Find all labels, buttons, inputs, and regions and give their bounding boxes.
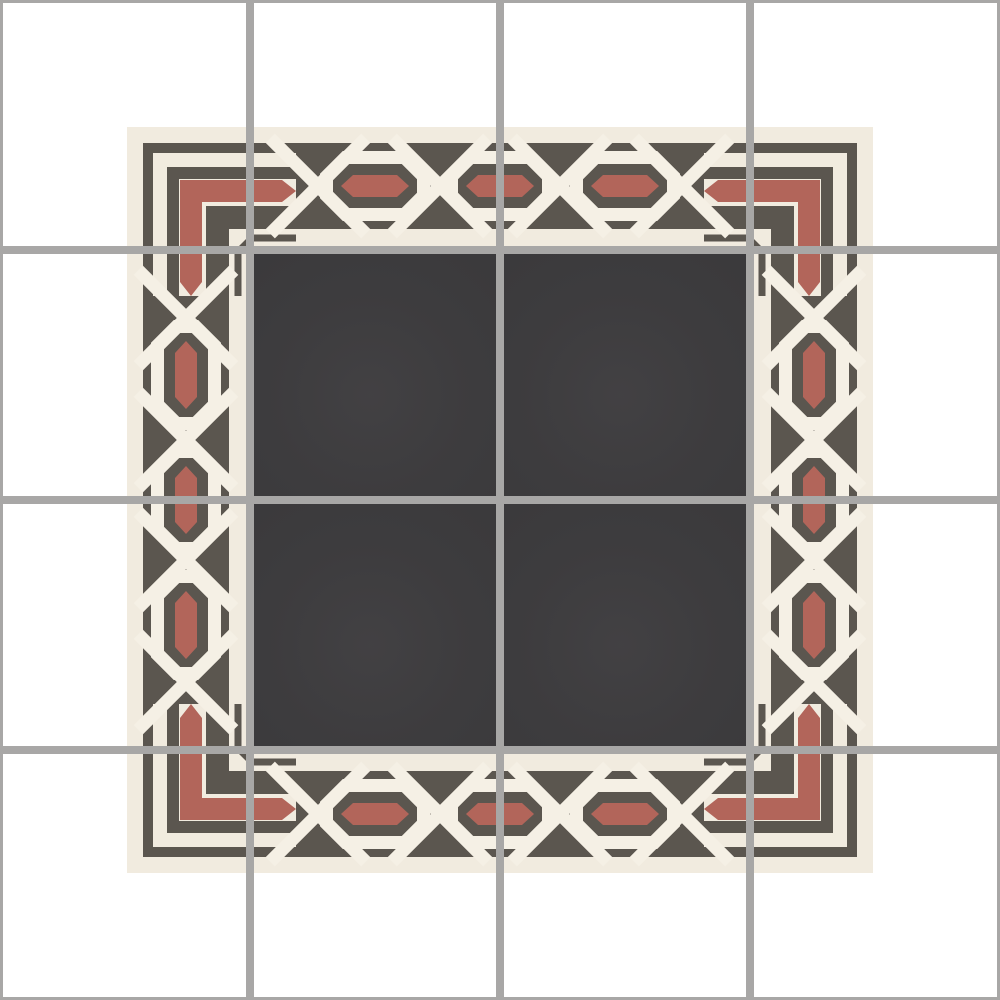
chain-red-link (175, 341, 197, 409)
tile-pattern-svg (0, 0, 1000, 1000)
grout-line-horizontal (0, 746, 1000, 754)
grout-line-vertical (496, 0, 504, 1000)
grout-line-vertical (746, 0, 754, 1000)
tile-product-image (0, 0, 1000, 1000)
chain-red-link (341, 175, 409, 197)
chain-red-link (803, 591, 825, 659)
chain-red-link (591, 803, 659, 825)
chain-red-link (803, 341, 825, 409)
grout-line-edge (0, 0, 3, 1000)
chain-red-link (591, 175, 659, 197)
chain-red-link (175, 591, 197, 659)
chain-red-link (341, 803, 409, 825)
grout-line-edge (0, 0, 1000, 3)
